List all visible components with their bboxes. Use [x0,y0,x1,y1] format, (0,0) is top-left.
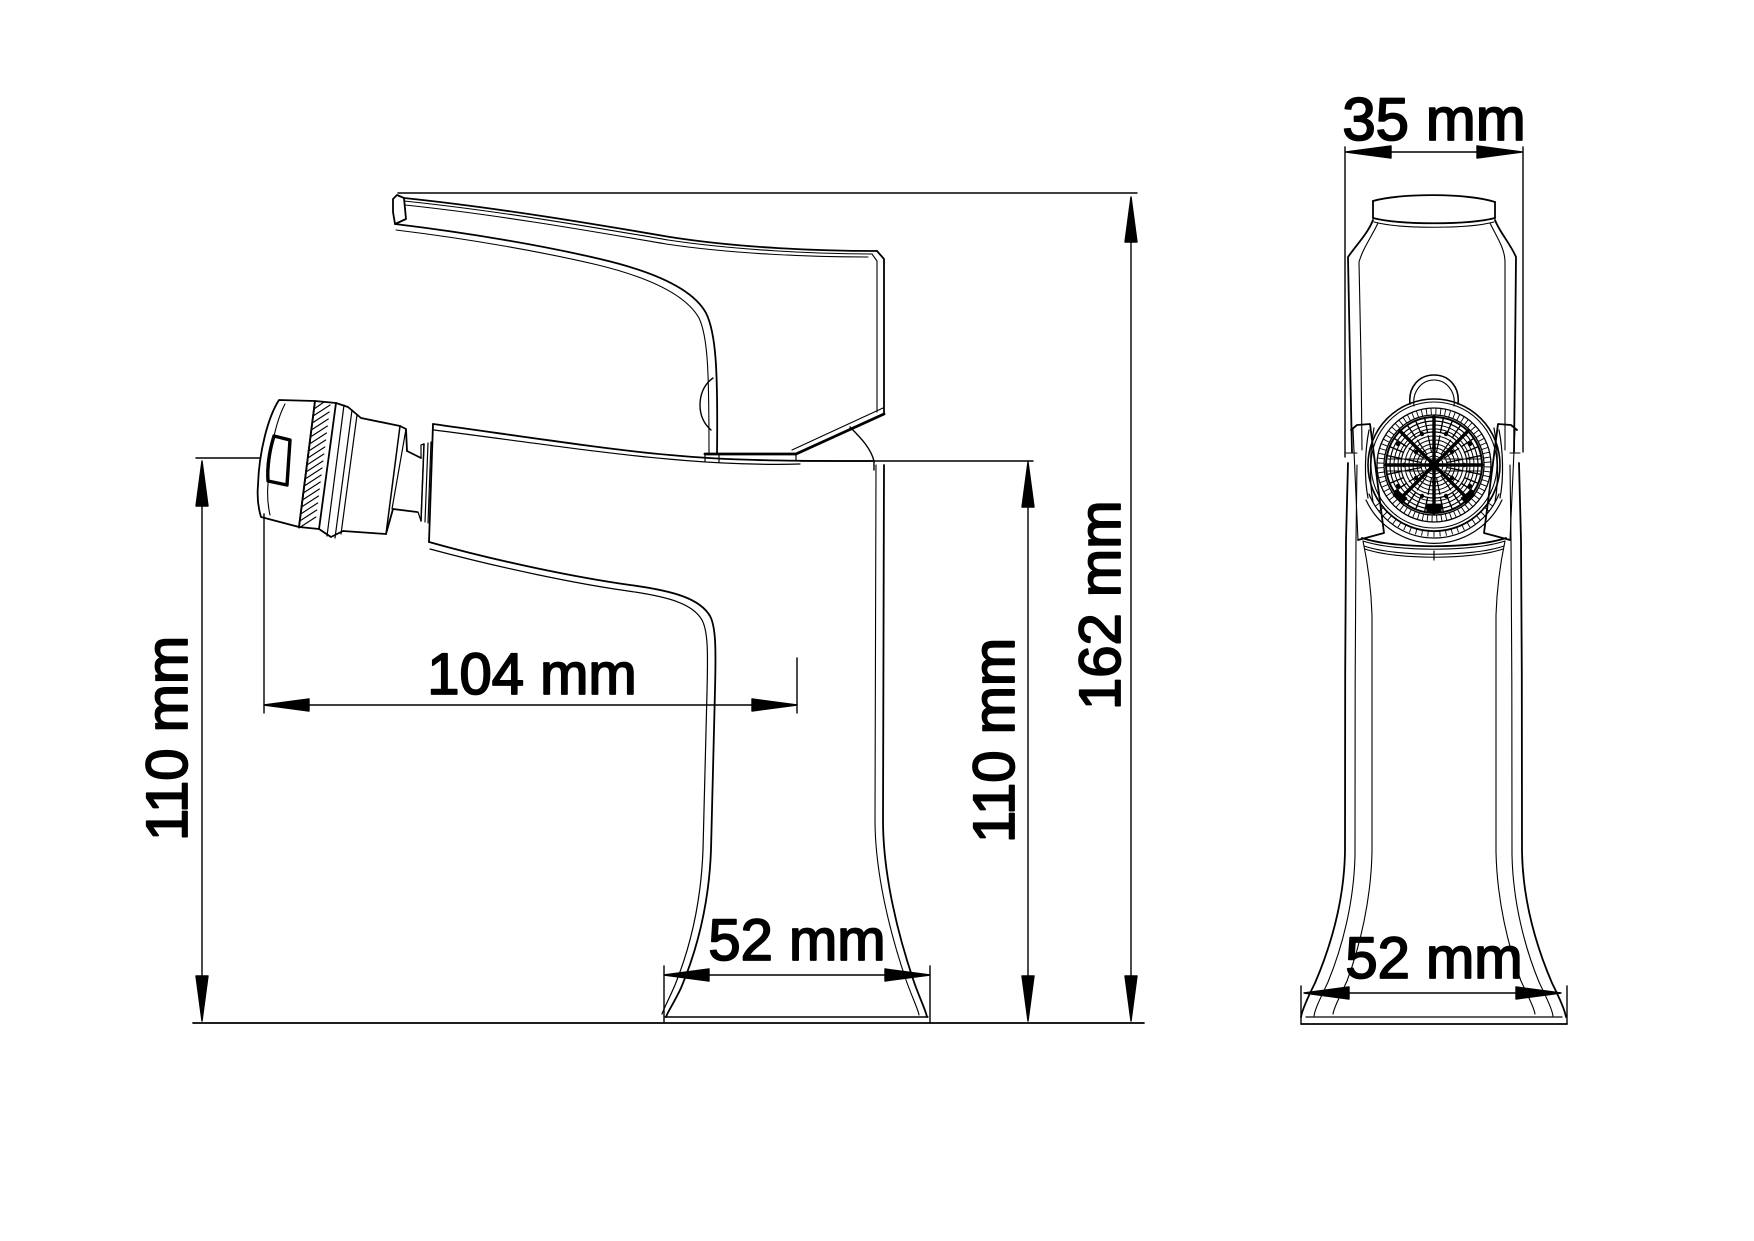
svg-text:110 mm: 110 mm [135,636,200,841]
svg-text:162 mm: 162 mm [1068,500,1133,710]
svg-text:35 mm: 35 mm [1342,86,1525,153]
svg-text:52 mm: 52 mm [708,908,885,973]
svg-text:52 mm: 52 mm [1345,926,1522,991]
svg-text:110 mm: 110 mm [962,638,1027,843]
svg-text:104 mm: 104 mm [427,642,637,707]
